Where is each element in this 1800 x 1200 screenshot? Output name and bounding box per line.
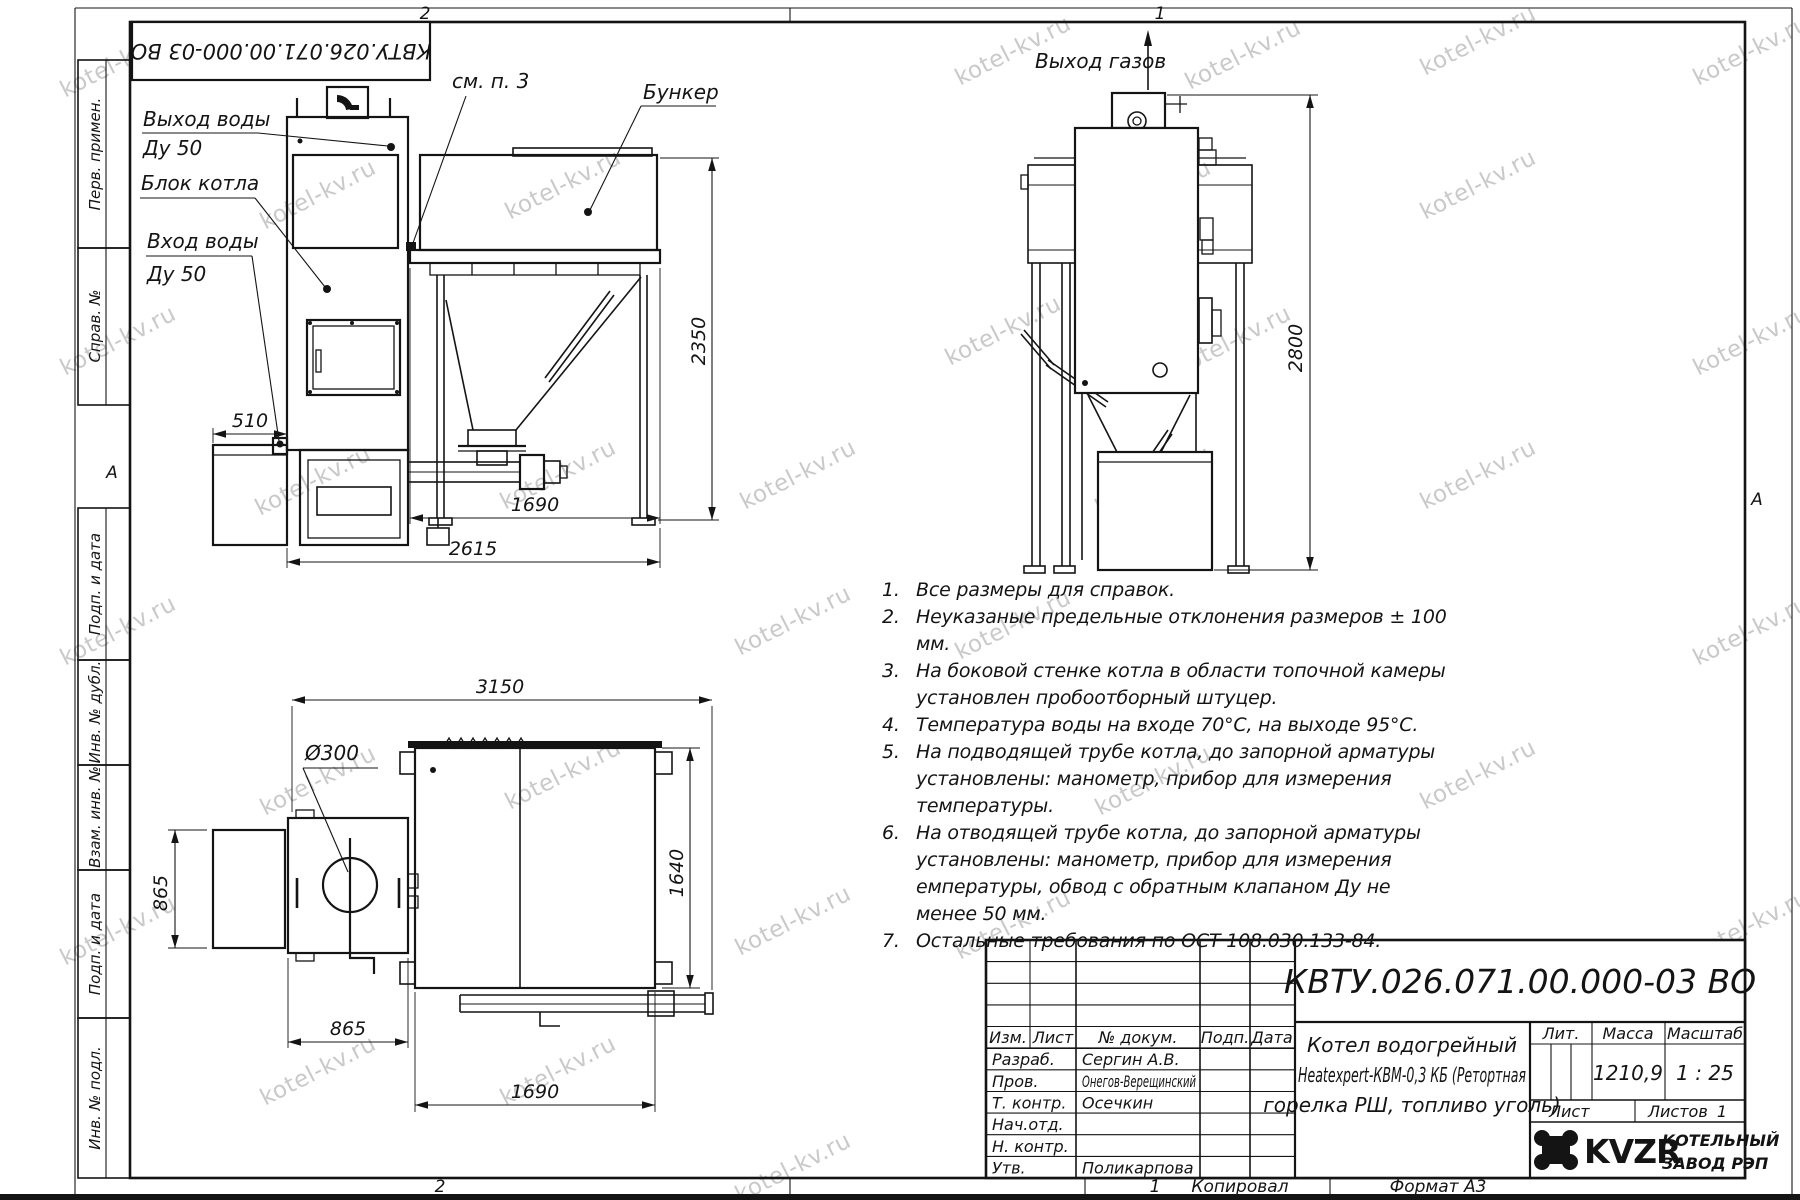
- front-view: 510 1690 2615 2350 Выход воды Ду 50: [140, 69, 719, 568]
- side-view: Выход газов: [1021, 30, 1318, 573]
- label-see-note-3: см. п. 3: [452, 69, 529, 93]
- title-block: Изм. Лист № докум. Подп. Дата Разраб. Се…: [986, 940, 1780, 1178]
- row-nkontr: Н. контр.: [992, 1137, 1069, 1156]
- utv-name: Поликарпова: [1082, 1159, 1194, 1178]
- col-data: Дата: [1250, 1028, 1292, 1047]
- zone-number-bottom-left: 2: [435, 1177, 446, 1197]
- label-gas-out: Выход газов: [1035, 49, 1166, 73]
- margin-label-sprav-no: Справ. №: [86, 290, 104, 363]
- note-number: 3.: [882, 658, 916, 712]
- doc-number: КВТУ.026.071.00.000-03 ВО: [1284, 962, 1756, 1001]
- company-line1: КОТЕЛЬНЫЙ: [1662, 1131, 1780, 1150]
- row-prov: Пров.: [992, 1072, 1039, 1091]
- note-text: На отводящей трубе котла, до запорной ар…: [916, 820, 1457, 928]
- label-water-in-2: Ду 50: [146, 262, 206, 286]
- label-dia-300: Ø300: [304, 741, 359, 765]
- note-text: На подводящей трубе котла, до запорной а…: [916, 739, 1457, 820]
- note-item: 3.На боковой стенке котла в области топо…: [882, 658, 1457, 712]
- massa-label: Масса: [1602, 1024, 1653, 1043]
- note-text: Температура воды на входе 70°С, на выход…: [916, 712, 1457, 739]
- flip-stamp-doc-number: КВТУ.026.071.00.000-03 ВО: [131, 39, 432, 63]
- note-item: 1.Все размеры для справок.: [882, 577, 1457, 604]
- product-name-line2: Heatexpert-КВМ-0,3 КБ (Ретортная: [1298, 1063, 1526, 1087]
- row-razrab: Разраб.: [992, 1050, 1055, 1069]
- note-number: 6.: [882, 820, 916, 928]
- dim-1690-plan: 1690: [511, 1081, 559, 1103]
- masshtab-label: Масштаб: [1667, 1024, 1743, 1043]
- dim-2615: 2615: [449, 538, 497, 560]
- margin-label-inv-dubl: Инв. № дубл.: [86, 661, 104, 764]
- drawing-sheet: kotel-kv.rukotel-kv.rukotel-kv.rukotel-k…: [0, 0, 1800, 1200]
- fold-mark-left: А: [105, 463, 118, 483]
- col-izm: Изм.: [989, 1028, 1027, 1047]
- masshtab-value: 1 : 25: [1676, 1061, 1734, 1085]
- note-number: 1.: [882, 577, 916, 604]
- label-bunker: Бункер: [643, 80, 719, 104]
- product-name-line3: горелка РШ, топливо уголь): [1263, 1093, 1560, 1117]
- margin-label-podp-data-1: Подп. и дата: [86, 533, 104, 635]
- listov-label: Листов: [1647, 1102, 1708, 1121]
- flip-stamp: КВТУ.026.071.00.000-03 ВО: [131, 22, 432, 80]
- note-text: Неуказаные предельные отклонения размеро…: [916, 604, 1457, 658]
- note-item: 7.Остальные требования по ОСТ 108.030.13…: [882, 928, 1457, 955]
- dim-2350: 2350: [688, 317, 710, 365]
- col-list: Лист: [1032, 1028, 1074, 1047]
- lit-label: Лит.: [1542, 1024, 1580, 1043]
- note-text: На боковой стенке котла в области топочн…: [916, 658, 1457, 712]
- note-item: 6.На отводящей трубе котла, до запорной …: [882, 820, 1457, 928]
- col-dokum: № докум.: [1098, 1028, 1178, 1047]
- dim-1640: 1640: [666, 849, 688, 897]
- note-number: 4.: [882, 712, 916, 739]
- row-nachotd: Нач.отд.: [992, 1115, 1064, 1134]
- zone-number-bottom-right: 1: [1150, 1177, 1161, 1197]
- copied-label: Копировал: [1191, 1177, 1288, 1197]
- note-item: 4.Температура воды на входе 70°С, на вых…: [882, 712, 1457, 739]
- row-utv: Утв.: [992, 1159, 1026, 1178]
- margin-label-vzam-inv: Взам. инв. №: [86, 766, 104, 868]
- zone-number-top-right: 1: [1155, 4, 1166, 24]
- product-name-line1: Котел водогрейный: [1307, 1033, 1517, 1057]
- company-line2: ЗАВОД РЭП: [1661, 1154, 1769, 1173]
- tkontr-name: Осечкин: [1082, 1094, 1153, 1113]
- dim-1690-front: 1690: [511, 494, 559, 516]
- margin-label-inv-podl: Инв. № подл.: [86, 1046, 104, 1149]
- label-water-out-1: Выход воды: [143, 107, 270, 131]
- front-labels: Выход воды Ду 50 Блок котла Вход воды Ду…: [140, 69, 719, 448]
- prov-name: Онегов-Верещинский: [1082, 1072, 1196, 1091]
- dim-3150: 3150: [476, 676, 524, 698]
- note-number: 7.: [882, 928, 916, 955]
- dim-2800: 2800: [1285, 324, 1307, 372]
- margin-column: Перв. примен. Справ. № Подп. и дата Инв.…: [78, 60, 130, 1178]
- row-tkontr: Т. контр.: [992, 1094, 1066, 1113]
- front-dimensions: 510 1690 2615 2350: [213, 158, 719, 568]
- dim-865-vertical: 865: [150, 875, 172, 911]
- col-podp: Подп.: [1201, 1028, 1249, 1047]
- format-label: Формат А3: [1390, 1177, 1487, 1197]
- note-text: Все размеры для справок.: [916, 577, 1457, 604]
- note-number: 5.: [882, 739, 916, 820]
- note-text: Остальные требования по ОСТ 108.030.133-…: [916, 928, 1457, 955]
- dim-510: 510: [232, 410, 268, 432]
- plan-view: Ø300 3150 865 865 1690: [150, 676, 713, 1112]
- margin-label-podp-data-2: Подп. и дата: [86, 893, 104, 995]
- note-number: 2.: [882, 604, 916, 658]
- label-boiler-block: Блок котла: [141, 171, 259, 195]
- fold-mark-right: А: [1750, 490, 1763, 510]
- listov-value: 1: [1717, 1102, 1727, 1121]
- note-item: 2.Неуказаные предельные отклонения разме…: [882, 604, 1457, 658]
- massa-value: 1210,9: [1593, 1061, 1663, 1085]
- list-label: Лист: [1548, 1102, 1590, 1121]
- dim-865-horizontal: 865: [330, 1018, 366, 1040]
- label-water-in-1: Вход воды: [147, 229, 259, 253]
- note-item: 5.На подводящей трубе котла, до запорной…: [882, 739, 1457, 820]
- notes-list: 1.Все размеры для справок.2.Неуказаные п…: [882, 577, 1457, 955]
- label-water-out-2: Ду 50: [142, 136, 202, 160]
- margin-label-perv-primen: Перв. примен.: [86, 98, 104, 211]
- razrab-name: Сергин А.В.: [1082, 1050, 1180, 1069]
